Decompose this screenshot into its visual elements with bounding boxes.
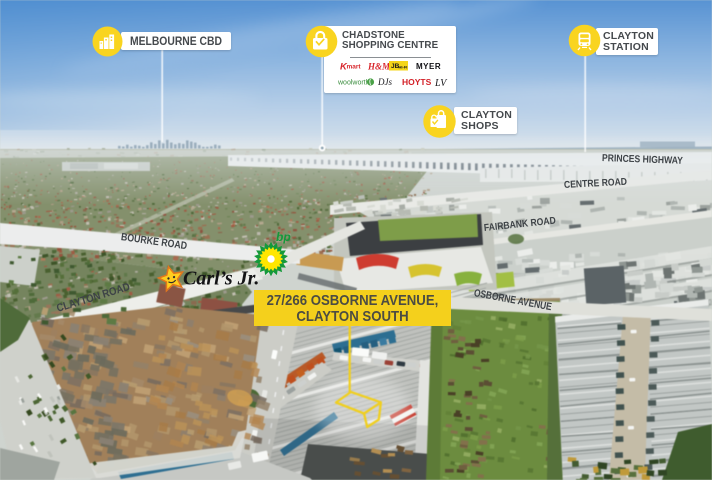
svg-text:H&M: H&M xyxy=(367,62,391,72)
svg-text:MYER: MYER xyxy=(416,62,441,71)
svg-text:HI-FI: HI-FI xyxy=(399,65,408,70)
svg-text:Carl’s Jr.: Carl’s Jr. xyxy=(183,268,259,290)
svg-text:HOYTS: HOYTS xyxy=(402,77,432,87)
svg-text:DJs: DJs xyxy=(377,77,392,87)
svg-text:mart: mart xyxy=(347,64,362,71)
svg-text:bp: bp xyxy=(276,230,291,244)
svg-text:LV: LV xyxy=(434,78,448,89)
